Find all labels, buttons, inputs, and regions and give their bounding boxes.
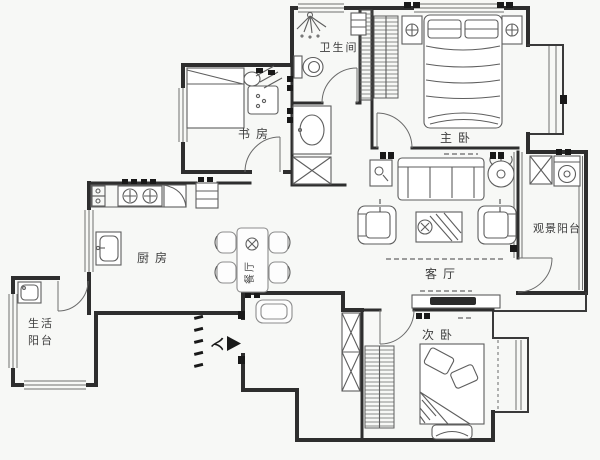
- kitchen-label: 厨房: [137, 250, 173, 265]
- corridor-vanity: [287, 106, 331, 154]
- single-bed: [187, 68, 244, 128]
- room-life-balcony: 生活 阳台: [18, 281, 88, 347]
- tv-icon: [430, 297, 476, 305]
- entry-arrow-icon: [227, 336, 241, 351]
- armchair-right: [478, 206, 516, 244]
- entry-label: 入: [210, 337, 225, 350]
- shoe-bench: [256, 300, 292, 323]
- view-balcony-label: 观景阳台: [533, 221, 581, 235]
- living-label: 客厅: [425, 266, 461, 281]
- coffee-table: [416, 212, 462, 242]
- bath-shelf: [351, 13, 366, 35]
- life-balcony-label-2: 阳台: [28, 333, 54, 347]
- life-balcony-label-1: 生活: [28, 316, 54, 330]
- dining-table: 餐厅: [237, 228, 268, 292]
- floorplan-page: 书房 卫生间: [0, 0, 600, 460]
- room-master: 主卧: [374, 2, 567, 154]
- room-second: 次卧: [365, 310, 484, 439]
- kitchen-sink: [96, 232, 121, 265]
- side-table: [370, 160, 392, 186]
- dining-label: 餐厅: [243, 260, 256, 284]
- second-label: 次卧: [422, 328, 458, 342]
- second-bed: [420, 344, 484, 439]
- balcony-cabinet: [530, 156, 552, 184]
- desk-chair: [244, 72, 260, 86]
- room-bathroom: 卫生间: [287, 13, 366, 104]
- dining-cabinet: [196, 177, 218, 208]
- sofa: [398, 158, 484, 200]
- nightstand-left: [402, 16, 422, 44]
- shower-icon: [297, 13, 326, 39]
- room-living: 客厅: [358, 152, 517, 308]
- mop-sink: [18, 282, 41, 303]
- nightstand-right: [502, 16, 522, 44]
- corridor-cabinet: [293, 157, 331, 184]
- fence-ticks: [194, 315, 203, 368]
- hall-cabinet: [342, 313, 360, 391]
- room-view-balcony: 观景阳台: [518, 149, 581, 292]
- washing-machine: [554, 156, 580, 186]
- tv-cabinet: [412, 291, 500, 308]
- bathroom-label: 卫生间: [320, 40, 359, 54]
- study-label: 书房: [238, 126, 274, 141]
- room-dining: 餐厅: [196, 177, 290, 298]
- master-label: 主卧: [440, 131, 476, 145]
- small-cabinet: [92, 186, 105, 206]
- armchair-left: [358, 206, 396, 244]
- desk: [248, 86, 278, 114]
- toilet-icon: [294, 56, 323, 78]
- floorplan-drawing: 书房 卫生间: [0, 0, 600, 460]
- room-kitchen: 厨房: [91, 179, 186, 265]
- double-bed: [424, 15, 502, 128]
- corner-unit: [164, 185, 186, 207]
- room-study: 书房: [187, 66, 282, 172]
